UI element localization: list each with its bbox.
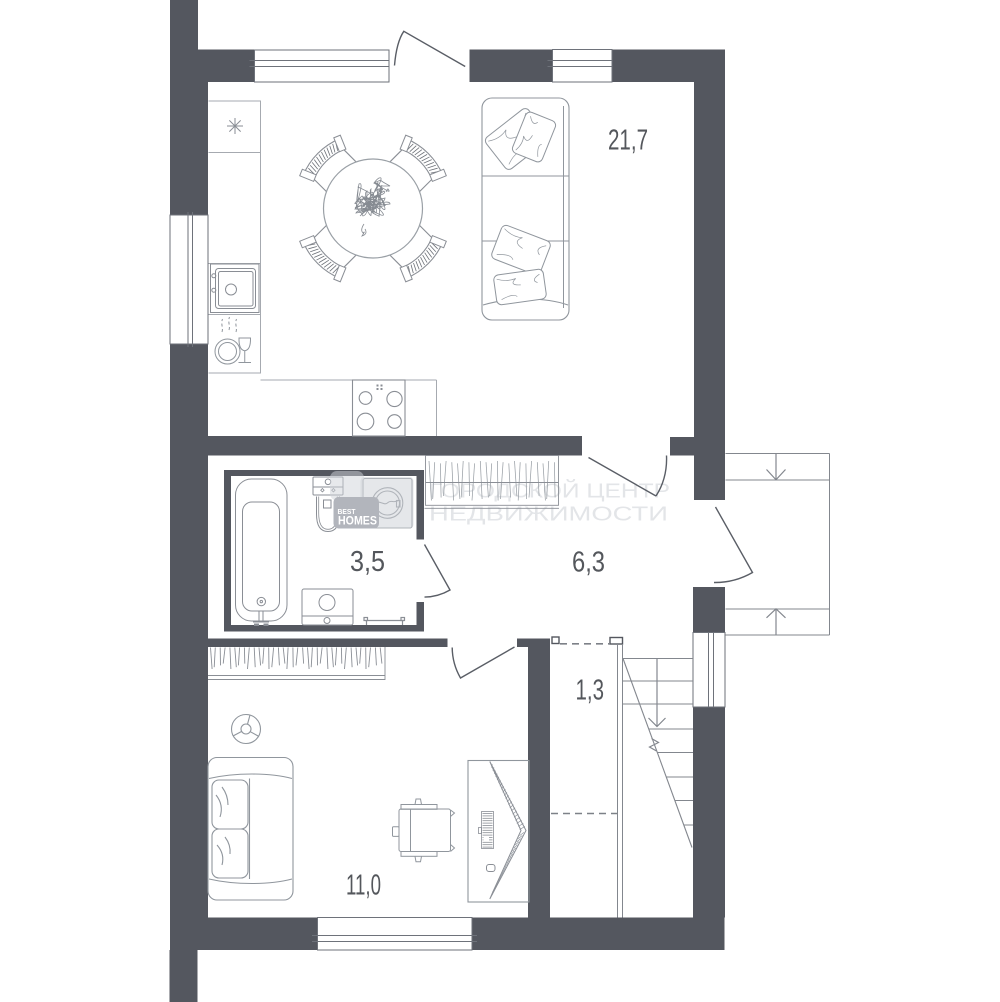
svg-text:3,5: 3,5 [350, 546, 385, 578]
svg-text:11,0: 11,0 [346, 870, 381, 902]
svg-text:1,3: 1,3 [576, 674, 605, 706]
svg-text:21,7: 21,7 [608, 125, 648, 157]
svg-text:HOMES: HOMES [338, 514, 377, 528]
svg-text:6,3: 6,3 [572, 547, 605, 579]
svg-text:НЕДВИЖИМОСТИ: НЕДВИЖИМОСТИ [429, 504, 668, 526]
